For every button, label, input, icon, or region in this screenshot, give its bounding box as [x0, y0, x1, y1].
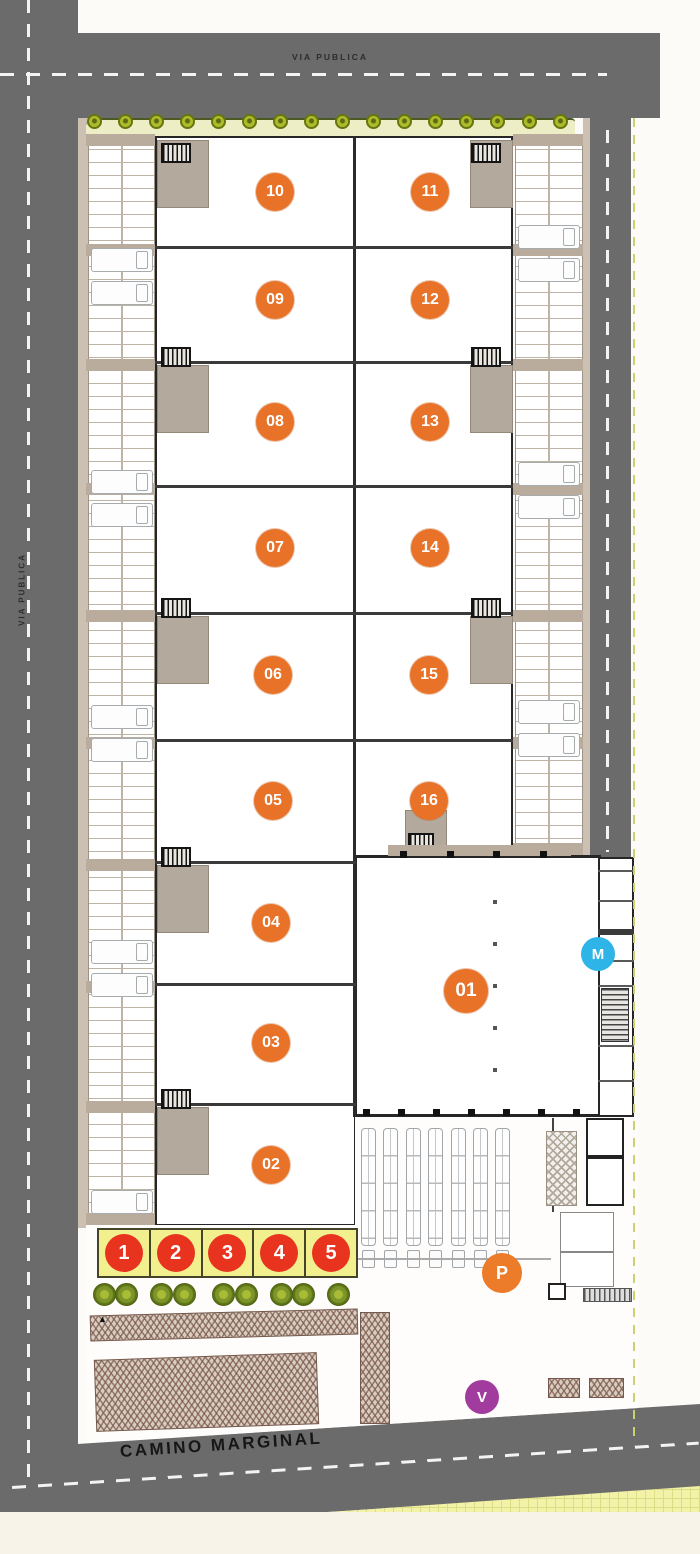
service-kiosk	[548, 1283, 566, 1300]
truck-stall-icon	[91, 973, 153, 997]
unit-badge-09: 09	[256, 281, 294, 319]
dock-tick	[540, 851, 547, 858]
service-room-1	[586, 1118, 624, 1157]
entrance-stall-number: 2	[157, 1234, 195, 1272]
parking-band	[86, 859, 155, 871]
office-block	[157, 1107, 209, 1175]
bush-icon	[173, 1283, 196, 1306]
truck-stall-icon	[518, 700, 580, 724]
bush-icon	[212, 1283, 235, 1306]
stair-core-icon	[161, 847, 191, 867]
truck-stall-icon	[91, 705, 153, 729]
street-tree-icon	[522, 114, 537, 129]
dock-tick	[538, 1109, 545, 1116]
entrance-stall-cell: 2	[151, 1230, 203, 1276]
office-block	[157, 616, 209, 684]
unit-divider	[155, 246, 356, 249]
service-room-4	[560, 1252, 614, 1287]
bush-icon	[327, 1283, 350, 1306]
dock-tick	[400, 851, 407, 858]
parking-band	[513, 359, 583, 371]
unit-divider	[354, 246, 513, 249]
entrance-stall-row: 12345	[97, 1228, 358, 1278]
column-dot	[493, 984, 497, 988]
truck-stall-icon	[91, 248, 153, 272]
stair-core-icon	[471, 347, 501, 367]
ramp-arrow-icon: ▲	[98, 1315, 107, 1324]
unit-badge-14: 14	[411, 529, 449, 567]
entrance-stall-cell: 1	[99, 1230, 151, 1276]
truck-stall-icon	[91, 281, 153, 305]
loading-bay-truck-icon	[383, 1128, 398, 1246]
bush-icon	[292, 1283, 315, 1306]
stair-core-icon	[161, 1089, 191, 1109]
stair-core-icon	[471, 598, 501, 618]
bush-icon	[115, 1283, 138, 1306]
column-dot	[493, 900, 497, 904]
entrance-stall-cell: 3	[203, 1230, 255, 1276]
east-wing-room-line	[598, 985, 634, 987]
building-right-units	[354, 136, 513, 857]
office-block	[470, 365, 513, 433]
unit-badge-15: 15	[410, 656, 448, 694]
unit-divider	[155, 739, 356, 742]
street-tree-icon	[211, 114, 226, 129]
street-tree-icon	[553, 114, 568, 129]
unit-badge-05: 05	[254, 782, 292, 820]
central-party-wall	[353, 136, 356, 1117]
unit-divider	[155, 983, 356, 986]
office-block	[470, 616, 513, 684]
unit-divider	[155, 485, 356, 488]
street-tree-icon	[118, 114, 133, 129]
entrance-stall-number: 3	[208, 1234, 246, 1272]
street-tree-icon	[366, 114, 381, 129]
road-left-centerline	[27, 0, 30, 1478]
road-left	[0, 0, 78, 1512]
office-block	[157, 365, 209, 433]
street-tree-icon	[335, 114, 350, 129]
street-tree-icon	[304, 114, 319, 129]
parking-band	[86, 1101, 155, 1113]
dock-tick	[468, 1109, 475, 1116]
parking-band	[86, 610, 155, 622]
truck-stall-icon	[91, 738, 153, 762]
east-wing-room-line	[598, 1080, 634, 1082]
unit-badge-13: 13	[411, 403, 449, 441]
right-sidewalk	[583, 118, 590, 855]
street-tree-icon	[242, 114, 257, 129]
truck-stall-icon	[91, 503, 153, 527]
truck-stall-icon	[518, 495, 580, 519]
unit-divider	[354, 739, 513, 742]
stair-core-icon	[161, 598, 191, 618]
truck-stall-icon	[518, 258, 580, 282]
parking-band	[86, 134, 155, 146]
entrance-stall-cell: 4	[254, 1230, 306, 1276]
loading-bay-truck-icon	[406, 1128, 421, 1246]
bush-icon	[93, 1283, 116, 1306]
dock-tick	[363, 1109, 370, 1116]
unit-badge-01: 01	[444, 969, 488, 1013]
column-dot	[493, 1068, 497, 1072]
street-tree-icon	[180, 114, 195, 129]
east-wing-dark-band	[598, 929, 634, 935]
road-right-centerline	[606, 130, 609, 852]
road-top-centerline	[0, 73, 607, 76]
court-divider-line	[355, 1258, 551, 1260]
planter-hatch-vertical	[360, 1312, 390, 1424]
entrance-stall-cell: 5	[306, 1230, 356, 1276]
dock-tick	[503, 1109, 510, 1116]
entrance-stall-number: 1	[105, 1234, 143, 1272]
ramp-hatch	[546, 1131, 577, 1206]
bush-icon	[150, 1283, 173, 1306]
street-tree-icon	[273, 114, 288, 129]
planter-hatch-large	[94, 1352, 319, 1432]
truck-stall-icon	[518, 733, 580, 757]
unit-badge-10: 10	[256, 173, 294, 211]
paper-strip	[0, 1512, 700, 1554]
site-plan: VIA PUBLICA VIA PUBLICA CAMINO MARGINAL …	[0, 0, 700, 1554]
stair-core-icon	[471, 143, 501, 163]
road-label-via-publica-top: VIA PUBLICA	[0, 52, 660, 62]
truck-stall-icon	[518, 225, 580, 249]
planter-hatch-small-2	[589, 1378, 624, 1398]
service-room-3	[560, 1212, 614, 1252]
unit-badge-16: 16	[410, 782, 448, 820]
dock-tick	[433, 1109, 440, 1116]
parking-band	[513, 134, 583, 146]
entrance-stall-number: 4	[260, 1234, 298, 1272]
parking-band	[86, 1213, 155, 1225]
marker-p: P	[482, 1253, 522, 1293]
unit-badge-02: 02	[252, 1146, 290, 1184]
truck-stall-icon	[91, 1190, 153, 1214]
loading-bay-truck-icon	[473, 1128, 488, 1246]
building-east-wing	[598, 857, 634, 1117]
loading-bay-truck-icon	[361, 1128, 376, 1246]
east-wing-stair-icon	[601, 988, 629, 1042]
street-tree-icon	[87, 114, 102, 129]
street-tree-icon	[149, 114, 164, 129]
bush-icon	[235, 1283, 258, 1306]
planter-hatch-small-1	[548, 1378, 580, 1398]
east-wing-room-line	[598, 870, 634, 872]
left-sidewalk	[78, 118, 88, 1228]
loading-bay-truck-icon	[495, 1128, 510, 1246]
loading-bay-truck-icon	[428, 1128, 443, 1246]
east-boundary-dash	[633, 118, 635, 1440]
truck-stall-icon	[518, 462, 580, 486]
east-wing-room-line	[598, 1045, 634, 1047]
loading-bay-truck-icon	[451, 1128, 466, 1246]
unit-badge-04: 04	[252, 904, 290, 942]
unit-badge-03: 03	[252, 1024, 290, 1062]
road-right	[590, 118, 631, 857]
unit-badge-11: 11	[411, 173, 449, 211]
truck-stall-icon	[91, 940, 153, 964]
dock-tick	[573, 1109, 580, 1116]
east-wing-room-line	[598, 900, 634, 902]
stair-core-icon	[161, 347, 191, 367]
south-stair-icon	[583, 1288, 632, 1302]
column-dot	[493, 942, 497, 946]
unit-divider	[354, 485, 513, 488]
road-label-via-publica-left: VIA PUBLICA	[18, 548, 27, 632]
parking-band	[513, 610, 583, 622]
parking-band	[86, 359, 155, 371]
dock-tick	[493, 851, 500, 858]
truck-stall-icon	[91, 470, 153, 494]
unit-badge-06: 06	[254, 656, 292, 694]
stair-core-icon	[161, 143, 191, 163]
dock-tick	[398, 1109, 405, 1116]
service-room-2	[586, 1157, 624, 1206]
marker-v: V	[465, 1380, 499, 1414]
unit-badge-07: 07	[256, 529, 294, 567]
unit-badge-08: 08	[256, 403, 294, 441]
dock-tick	[447, 851, 454, 858]
entrance-stall-number: 5	[312, 1234, 350, 1272]
office-block	[157, 865, 209, 933]
column-dot	[493, 1026, 497, 1030]
marker-m: M	[581, 937, 615, 971]
bush-icon	[270, 1283, 293, 1306]
unit-badge-12: 12	[411, 281, 449, 319]
